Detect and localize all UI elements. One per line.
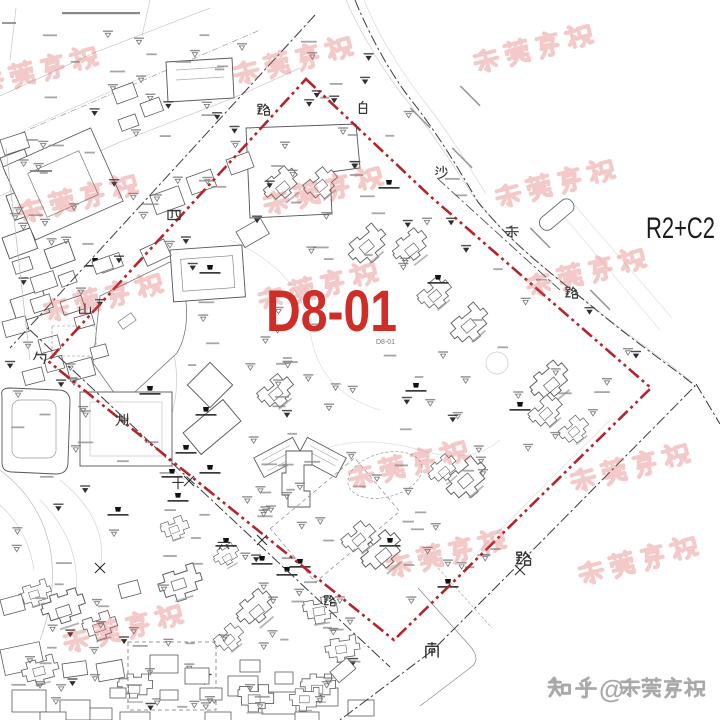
svg-text:D8-01: D8-01 xyxy=(266,279,397,344)
svg-text:D8-01: D8-01 xyxy=(376,339,395,346)
svg-text:@: @ xyxy=(599,674,624,704)
svg-text:R2+C2: R2+C2 xyxy=(646,212,715,245)
